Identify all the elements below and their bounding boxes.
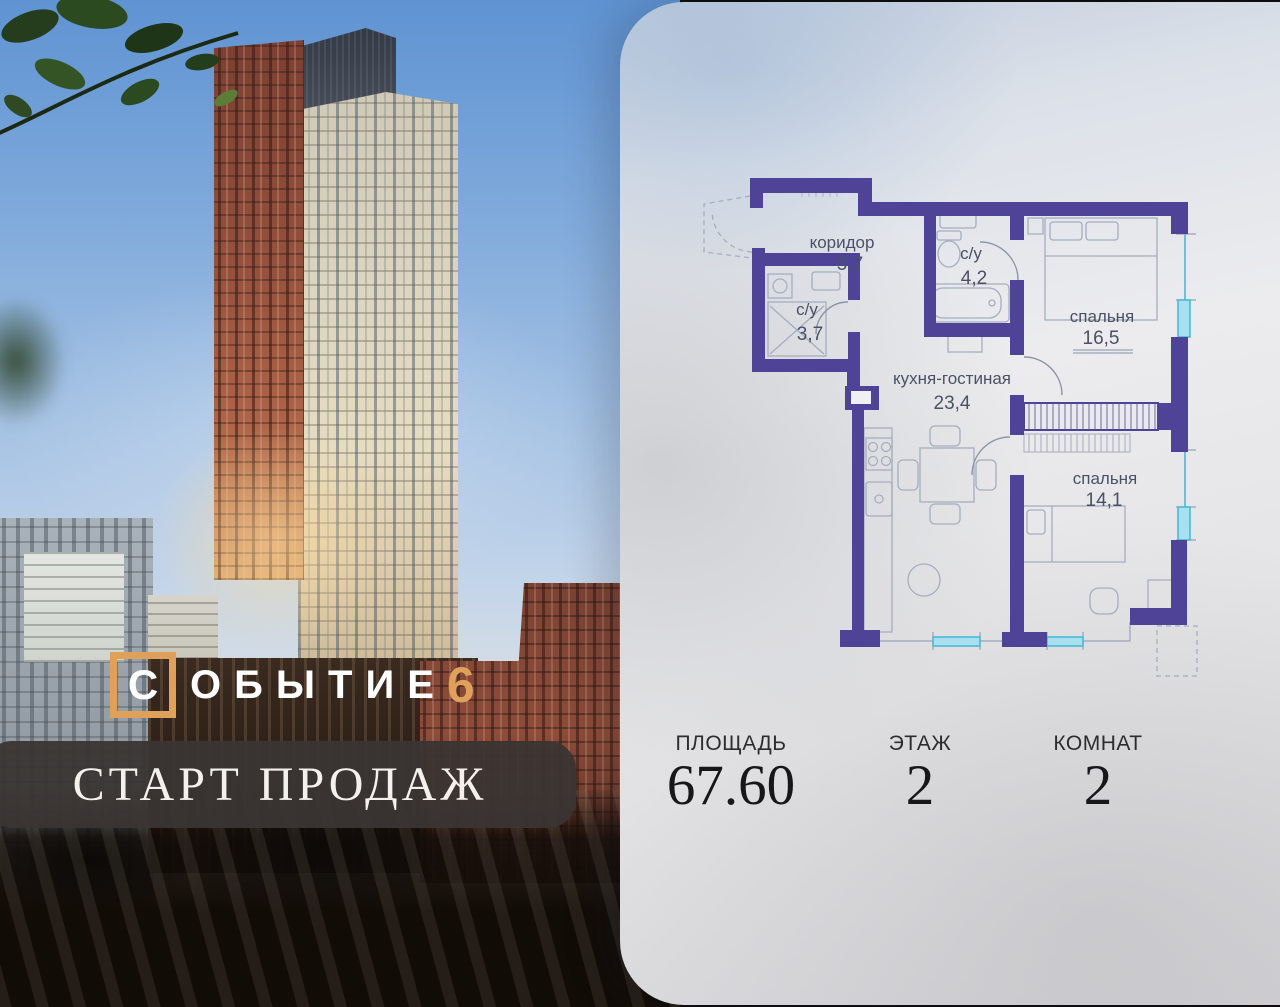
stat-rooms: КОМНАТ 2: [1053, 732, 1142, 816]
logo-first-letter: С: [128, 661, 158, 709]
tree-branch: [0, 0, 278, 228]
stat-area-value: 67.60: [667, 756, 795, 816]
room-area-kitchen-living: 23,4: [934, 393, 971, 414]
room-label-bedroom-2: спальня: [1073, 469, 1138, 488]
promo-image: С ОБЫТИЕ 6 СТАРТ ПРОДАЖ: [0, 0, 1280, 1007]
stat-floor-label: ЭТАЖ: [889, 732, 952, 756]
stat-rooms-value: 2: [1053, 756, 1142, 816]
building-photo: С ОБЫТИЕ 6 СТАРТ ПРОДАЖ: [0, 0, 680, 1007]
logo-brand-text: ОБЫТИЕ: [190, 652, 447, 718]
room-area-corridor: 5,7: [837, 254, 863, 275]
wardrobe-hatch: [1024, 403, 1158, 430]
stat-area-label: ПЛОЩАДЬ: [667, 732, 795, 756]
floor-plan: коридор 5,7 с/у 4,2 с/у 3,7 кухня-гостин…: [690, 160, 1210, 700]
vent-shaft: [851, 391, 871, 404]
room-label-corridor: коридор: [810, 233, 875, 252]
stat-area: ПЛОЩАДЬ 67.60: [667, 732, 795, 816]
background-building-white: [24, 552, 124, 662]
room-label-bedroom-1: спальня: [1070, 307, 1135, 326]
room-label-bathroom-2: с/у: [796, 300, 818, 319]
stat-floor-value: 2: [889, 756, 952, 816]
room-label-bathroom-1: с/у: [960, 244, 982, 263]
sales-start-text: СТАРТ ПРОДАЖ: [73, 757, 488, 812]
foreground-leaves-blur: [0, 296, 66, 426]
room-area-bedroom-1: 16,5: [1083, 328, 1120, 349]
logo-first-letter-frame: С: [110, 652, 176, 718]
room-area-bathroom-2: 3,7: [797, 324, 823, 345]
room-area-bedroom-2: 14,1: [1086, 490, 1123, 511]
wardrobe-hatch-2: [1024, 434, 1130, 452]
stat-floor: ЭТАЖ 2: [889, 732, 952, 816]
stat-rooms-label: КОМНАТ: [1053, 732, 1142, 756]
sales-start-banner: СТАРТ ПРОДАЖ: [0, 741, 576, 828]
brand-logo: С ОБЫТИЕ 6: [110, 652, 475, 718]
room-label-kitchen-living: кухня-гостиная: [893, 369, 1011, 388]
logo-project-number: 6: [447, 655, 475, 715]
room-area-bathroom-1: 4,2: [961, 268, 987, 289]
